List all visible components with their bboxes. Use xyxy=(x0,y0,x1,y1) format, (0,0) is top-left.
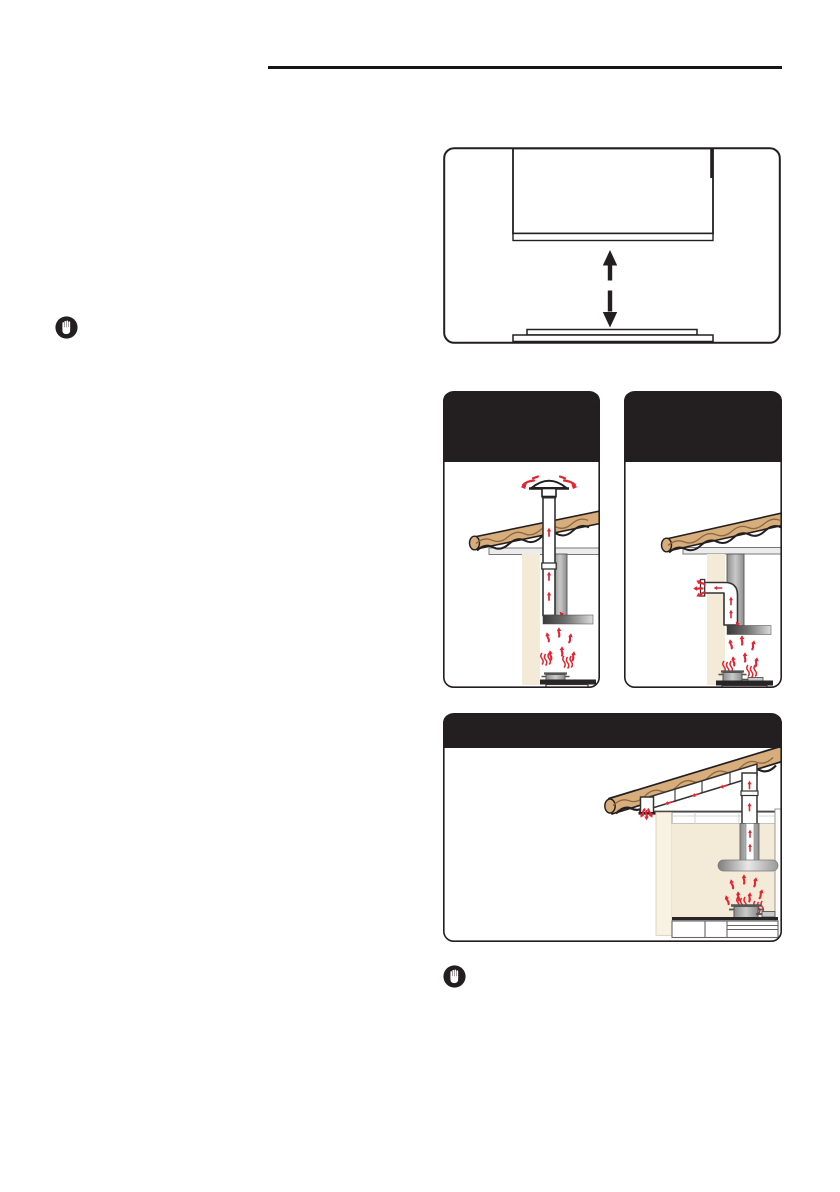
figure-header-band xyxy=(443,392,600,462)
counter-top xyxy=(672,917,778,920)
clearance-diagram xyxy=(443,147,781,344)
figure-header-band xyxy=(624,392,782,462)
exterior-wall xyxy=(656,813,672,936)
cooker-hood xyxy=(727,626,771,635)
ceiling-band xyxy=(672,813,775,824)
eave-outlet-diagram xyxy=(443,713,782,942)
pot xyxy=(719,672,747,683)
wall xyxy=(707,554,725,685)
hand-stop-icon xyxy=(55,316,78,339)
hob xyxy=(513,330,713,342)
hob xyxy=(540,680,596,688)
cooker-hood xyxy=(543,615,593,624)
cooker-hood-front xyxy=(513,149,713,241)
riser-duct xyxy=(741,773,758,824)
wall-outlet-diagram xyxy=(624,391,782,688)
wall xyxy=(522,554,540,685)
section-divider-rule xyxy=(268,66,782,69)
pot xyxy=(729,906,763,918)
kitchen-cabinets xyxy=(672,921,778,938)
manual-page xyxy=(0,0,840,1192)
hand-stop-icon xyxy=(443,965,466,988)
figure-header-band xyxy=(443,714,782,748)
roof-outlet-diagram xyxy=(443,391,600,688)
